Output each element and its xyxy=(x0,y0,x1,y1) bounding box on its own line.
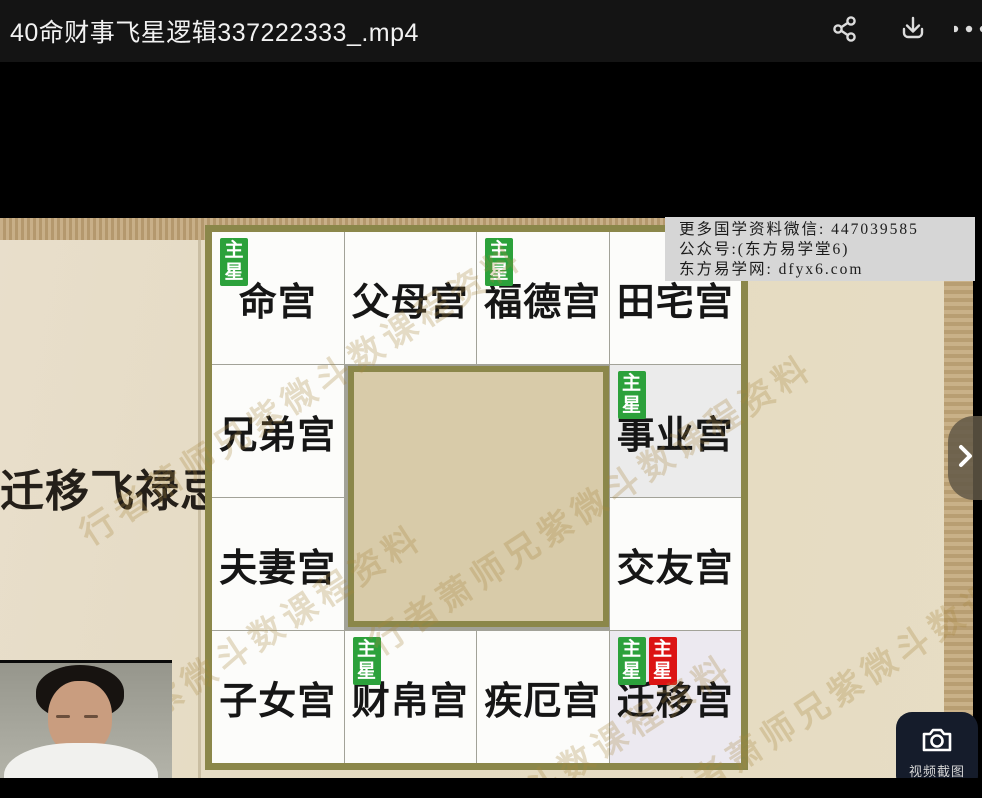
badge-char-bottom: 星 xyxy=(357,661,376,683)
badge-char-bottom: 星 xyxy=(224,262,243,284)
palace-name: 夫妻宫 xyxy=(219,537,336,592)
presenter-eye-right xyxy=(84,715,98,718)
palace-cell-fuqi-gong: 夫妻宫 xyxy=(212,498,344,630)
palace-cell-zinv-gong: 子女宫 xyxy=(212,631,344,763)
title-bar: 40命财事飞星逻辑337222333_.mp4 xyxy=(0,0,982,62)
badge-char-bottom: 星 xyxy=(622,661,641,683)
video-player-window: 40命财事飞星逻辑337222333_.mp4 xyxy=(0,0,982,798)
next-page-button[interactable] xyxy=(948,416,982,500)
palace-name: 父母宫 xyxy=(352,271,469,326)
badge-char-top: 主 xyxy=(224,240,243,262)
palace-cell-caibo-gong: 主 星 财帛宫 xyxy=(345,631,477,763)
chart-center-panel xyxy=(348,366,609,627)
badge-char-bottom: 星 xyxy=(489,262,508,284)
palace-cell-jiaoyou-gong: 交友宫 xyxy=(610,498,742,630)
promo-line-account: 公众号:(东方易学堂6) xyxy=(679,240,967,260)
download-button[interactable] xyxy=(890,8,936,54)
badge-group: 主 星 xyxy=(220,238,248,286)
bottom-letterbox xyxy=(0,778,982,798)
palace-name: 疾厄宫 xyxy=(484,670,601,725)
palace-name: 交友宫 xyxy=(617,537,734,592)
promo-line-wechat: 更多国学资料微信: 447039585 xyxy=(679,220,967,240)
share-icon xyxy=(830,14,860,49)
download-icon xyxy=(898,14,928,49)
main-star-badge-green: 主 星 xyxy=(485,238,513,286)
badge-char-bottom: 星 xyxy=(622,395,641,417)
zwds-palace-grid: 主 星 命宫 父母宫 主 星 福德宫 田宅宫 xyxy=(205,225,748,770)
palace-cell-qianyi-gong: 主 星 主 星 迁移宫 xyxy=(610,631,742,763)
badge-char-top: 主 xyxy=(622,373,641,395)
more-icon xyxy=(954,14,982,49)
chevron-right-icon xyxy=(956,443,974,474)
promo-line-website: 东方易学网: dfyx6.com xyxy=(679,260,967,280)
more-options-button[interactable] xyxy=(954,8,982,54)
screenshot-button-label: 视频截图 xyxy=(909,761,965,780)
palace-name: 兄弟宫 xyxy=(219,404,336,459)
presenter-eye-left xyxy=(56,715,70,718)
badge-char-bottom: 星 xyxy=(653,661,672,683)
presenter-webcam xyxy=(0,660,172,778)
badge-group: 主 星 主 星 xyxy=(618,637,677,685)
main-star-badge-green: 主 星 xyxy=(618,637,646,685)
flying-star-annotation: 迁移飞禄忌 xyxy=(0,455,225,519)
share-button[interactable] xyxy=(822,8,868,54)
main-star-badge-green: 主 星 xyxy=(220,238,248,286)
palace-name: 子女宫 xyxy=(219,670,336,725)
palace-cell-ming-gong: 主 星 命宫 xyxy=(212,232,344,364)
title-bar-actions xyxy=(822,0,982,62)
badge-char-top: 主 xyxy=(653,639,672,661)
badge-char-top: 主 xyxy=(489,240,508,262)
main-star-badge-green: 主 星 xyxy=(618,371,646,419)
main-star-badge-red: 主 星 xyxy=(649,637,677,685)
main-star-badge-green: 主 星 xyxy=(353,637,381,685)
badge-char-top: 主 xyxy=(622,639,641,661)
palace-name: 命宫 xyxy=(239,271,317,326)
presenter-shirt xyxy=(4,743,158,778)
palace-cell-fumu-gong: 父母宫 xyxy=(345,232,477,364)
badge-group: 主 星 xyxy=(353,637,381,685)
palace-cell-shiye-gong: 主 星 事业宫 xyxy=(610,365,742,497)
badge-group: 主 星 xyxy=(618,371,646,419)
video-title: 40命财事飞星逻辑337222333_.mp4 xyxy=(10,13,419,49)
badge-char-top: 主 xyxy=(357,639,376,661)
palace-cell-xiongdi-gong: 兄弟宫 xyxy=(212,365,344,497)
camera-icon xyxy=(920,725,954,758)
promo-info-overlay: 更多国学资料微信: 447039585 公众号:(东方易学堂6) 东方易学网: … xyxy=(665,217,975,281)
palace-cell-fude-gong: 主 星 福德宫 xyxy=(477,232,609,364)
badge-group: 主 星 xyxy=(485,238,513,286)
palace-cell-jie-gong: 疾厄宫 xyxy=(477,631,609,763)
